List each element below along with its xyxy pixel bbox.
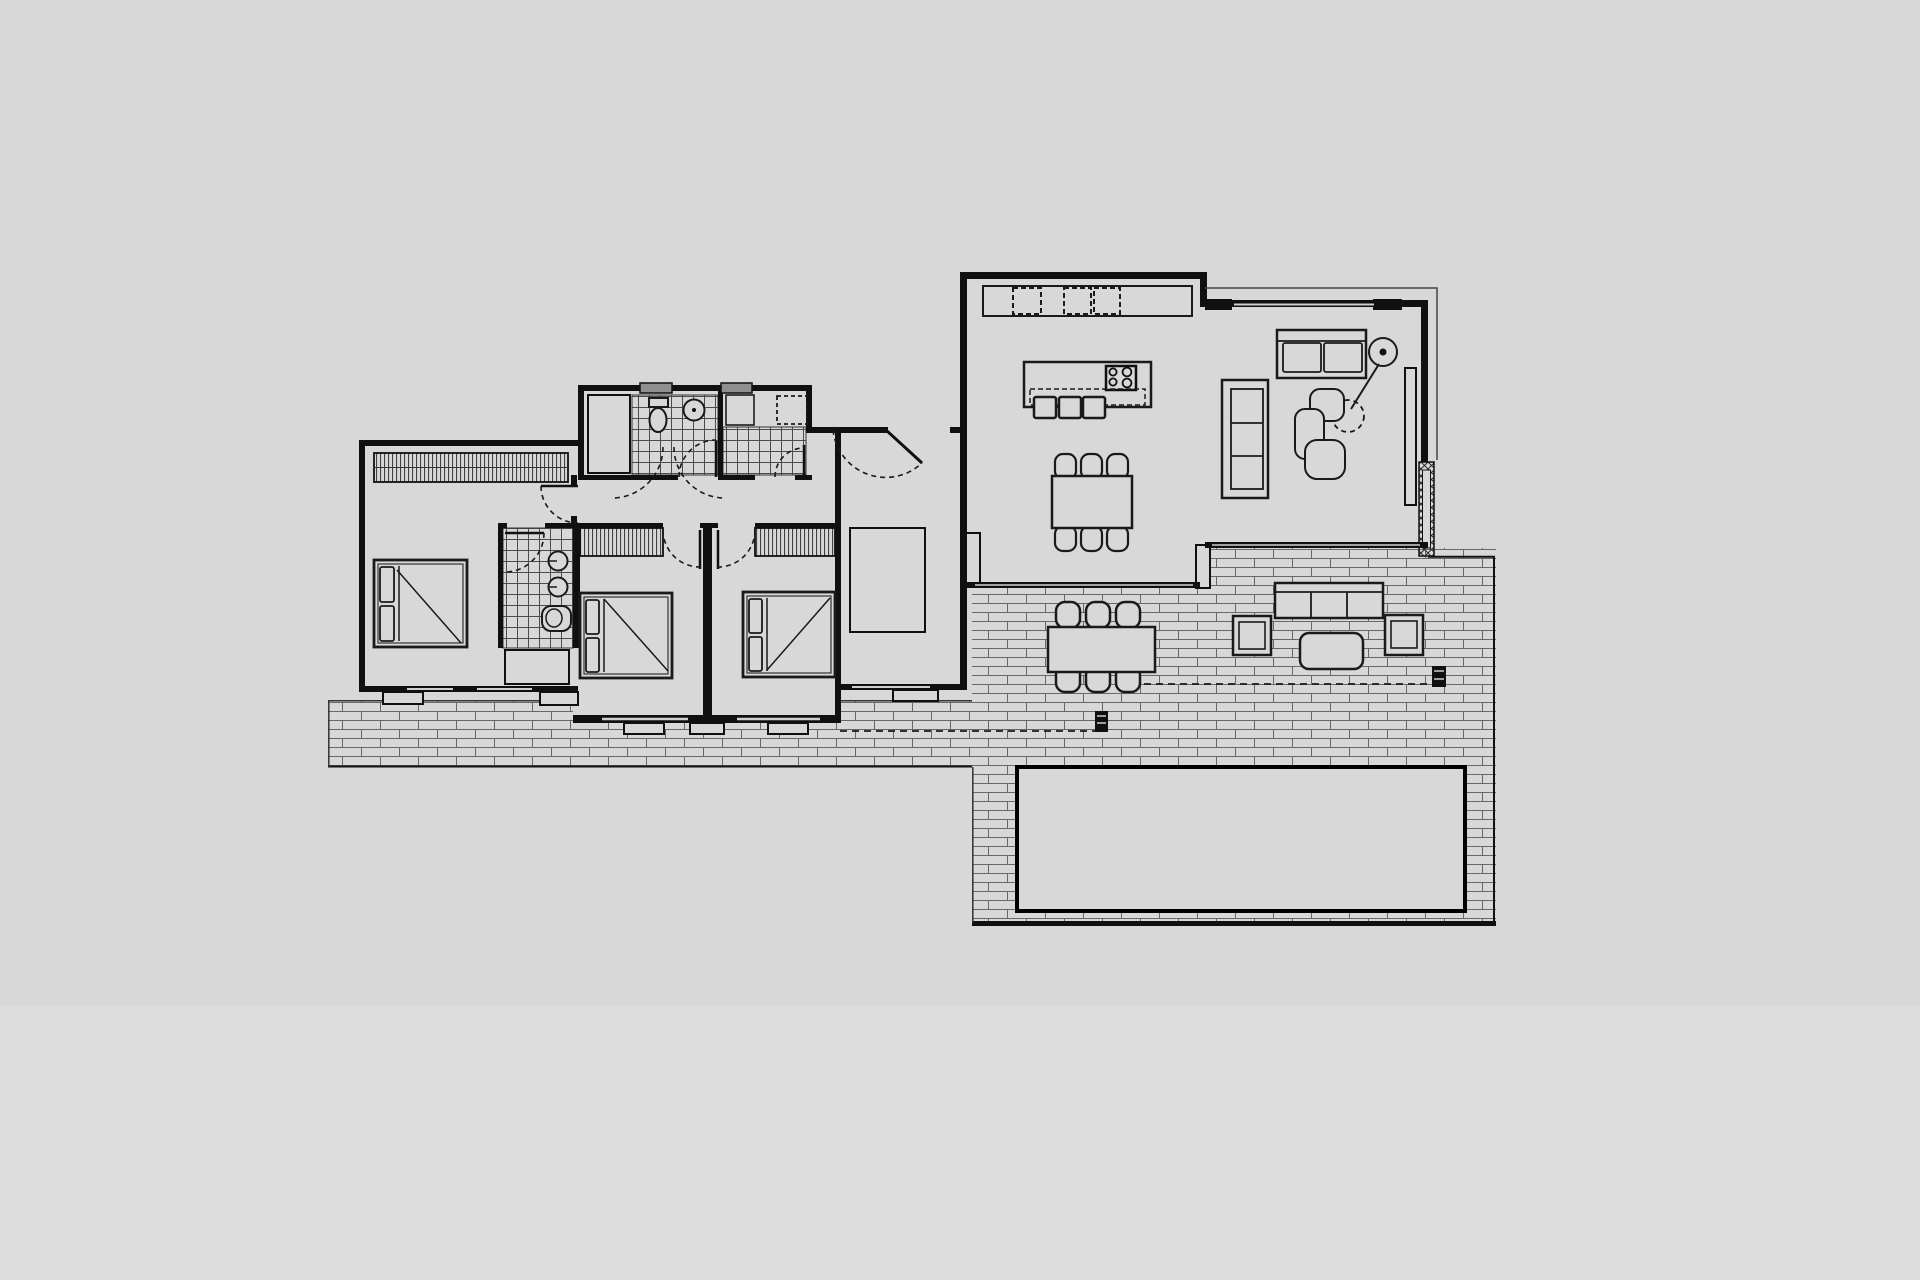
outdoor-dining-chair [1086, 602, 1110, 628]
utility-fixture-left [1095, 711, 1108, 732]
dining-table [1052, 476, 1132, 528]
window-bath-2-north [721, 383, 752, 393]
coffee-table-nest [1305, 440, 1345, 479]
tv-panel [1405, 368, 1416, 505]
bath-2-tile-floor [723, 427, 806, 475]
wardrobe-bedroom-3 [755, 528, 835, 556]
wall-bedrooms-north-c [755, 523, 841, 528]
cooktop-burner [1109, 368, 1116, 375]
bed-2-pillow [586, 638, 599, 672]
footing-stub [540, 692, 578, 705]
wall-bath-block-west [578, 385, 584, 480]
bath-1-toilet-tank [649, 398, 668, 407]
wall-bath-divider [718, 385, 723, 475]
wall-master-door-stub-b [571, 516, 577, 528]
footing-stub [690, 723, 724, 734]
wall-ensuite-north-b [545, 523, 573, 528]
outdoor-dining-chair [1116, 602, 1140, 628]
wall-entry-north [806, 427, 888, 433]
wall-living-east [1421, 300, 1428, 462]
dining-chair [1107, 526, 1128, 551]
outdoor-dining-chair [1056, 602, 1080, 628]
living-sofa-long [1222, 380, 1268, 498]
outdoor-dining-table [1048, 627, 1155, 672]
corridor-sliding-door-pocket [850, 528, 925, 632]
bath-2-closet [726, 395, 754, 425]
outdoor-sofa [1275, 583, 1383, 618]
dining-chair [1055, 526, 1076, 551]
cooktop-burner [1123, 379, 1132, 388]
wall-master-south [359, 686, 578, 692]
bed-3-pillow [749, 599, 762, 633]
footing-stub [383, 692, 423, 704]
wall-master-west [359, 440, 365, 692]
cooktop-burner [1123, 368, 1132, 377]
wall-bath-south-a [578, 475, 678, 480]
wall-bedrooms-north-b [700, 523, 718, 528]
kitchen-counter [983, 286, 1192, 316]
window-bath-1-north [640, 383, 672, 393]
wall-corridor-east [960, 588, 967, 690]
fireplace-niche [1423, 470, 1431, 548]
bath-1-sink-drain [692, 408, 696, 412]
bed-master-pillow [380, 606, 394, 641]
bath-1-closet [588, 395, 630, 473]
window-living-north-pier-a [1205, 299, 1232, 310]
sheet-lower-band [0, 1006, 1920, 1280]
wall-bed2-bed3-divider [703, 528, 712, 723]
floor-lamp-bulb [1380, 349, 1387, 356]
wall-kitchen-north [960, 272, 1207, 279]
vanity-master [505, 650, 569, 684]
wall-ensuite-west [498, 523, 503, 648]
dining-chair [1081, 526, 1102, 551]
wall-bedrooms-north-a [573, 523, 663, 528]
footing-stub [768, 723, 808, 734]
wall-great-room-west [960, 272, 967, 588]
wall-bath-block-north [578, 385, 812, 391]
deck-right-bottom-edge [972, 921, 1496, 926]
bar-stool [1059, 397, 1081, 418]
bath-1-toilet-bowl [650, 408, 667, 432]
footing-stub [893, 690, 938, 701]
footing-stub [624, 723, 664, 734]
bar-stool [1034, 397, 1056, 418]
floor-plan-canvas [0, 0, 1920, 1280]
drawing-sheet [0, 0, 1920, 1280]
bed-2-pillow [586, 600, 599, 634]
cooktop-burner [1109, 378, 1116, 385]
window-living-north-pier-b [1373, 299, 1402, 310]
door-jamb-terrace [1196, 545, 1210, 588]
bar-stool [1083, 397, 1105, 418]
outdoor-coffee-table [1300, 633, 1363, 669]
swimming-pool [1017, 767, 1465, 911]
bed-3-pillow [749, 637, 762, 671]
wall-master-north [359, 440, 578, 446]
utility-fixture-right [1432, 666, 1446, 687]
bed-master-pillow [380, 567, 394, 602]
wardrobe-bedroom-2 [580, 528, 663, 556]
wall-bath-south-b [718, 475, 755, 480]
